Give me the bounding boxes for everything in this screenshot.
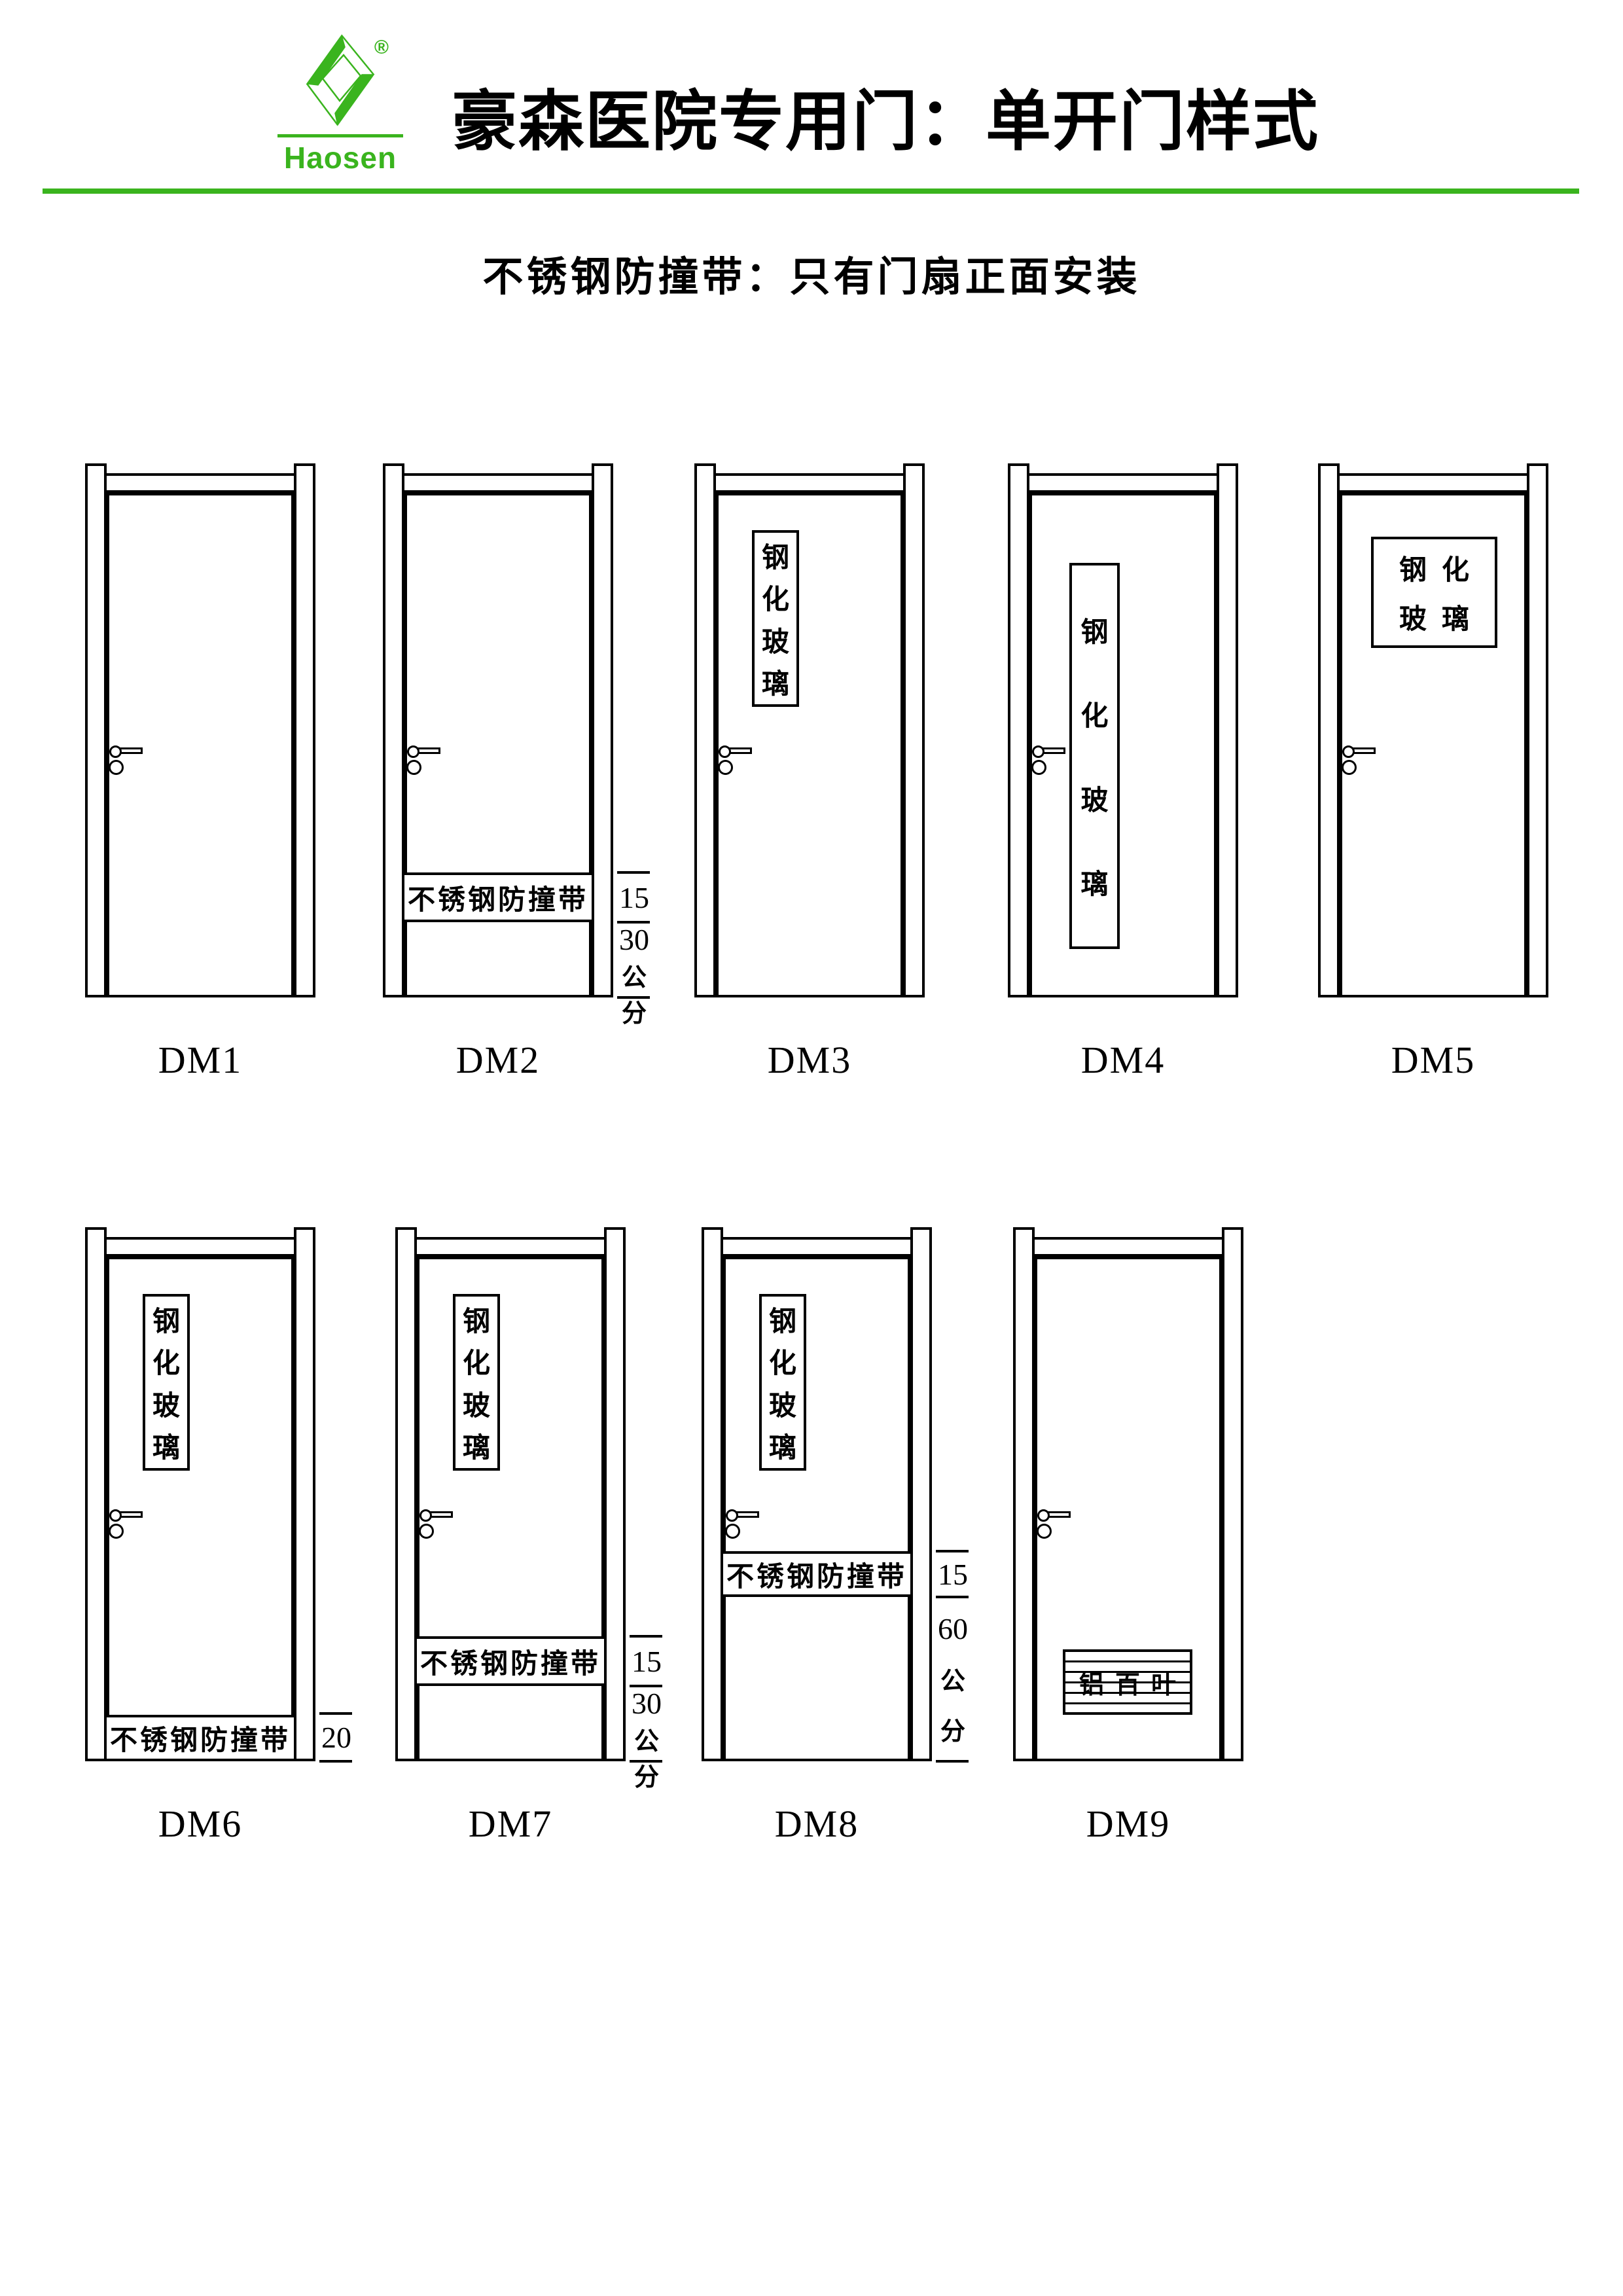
impact-strip: 不锈钢防撞带 xyxy=(417,1636,604,1686)
door-lintel xyxy=(1028,473,1218,493)
glass-label: 玻 xyxy=(769,1384,796,1424)
door-handle-rosette xyxy=(726,1509,738,1522)
catalog-page: ® Haosen 豪森医院专用门：单开门样式 不锈钢防撞带：只有门扇正面安装 D… xyxy=(0,0,1623,2296)
glass-label: 璃 xyxy=(762,662,789,702)
glass-panel: 钢化玻璃 xyxy=(143,1294,190,1471)
door-dm6: 钢化玻璃不锈钢防撞带20DM6 xyxy=(85,1227,315,1761)
dimension-value: 公 xyxy=(940,1660,965,1696)
door-label: DM9 xyxy=(1013,1802,1243,1846)
glass-label: 化 xyxy=(1080,694,1108,734)
door-left-jamb xyxy=(1318,463,1340,997)
page-title: 豪森医院专用门：单开门样式 xyxy=(452,68,1319,163)
registered-mark: ® xyxy=(374,37,389,59)
diamond-logo-icon xyxy=(304,33,376,128)
dimension-value: 60 xyxy=(938,1611,968,1646)
impact-strip-label: 不锈钢防撞带 xyxy=(420,1641,601,1681)
door-handle-keyhole-rosette xyxy=(725,1524,740,1539)
door-handle-rosette xyxy=(1037,1509,1050,1522)
door-lintel xyxy=(722,1237,912,1257)
logo-divider xyxy=(277,134,403,137)
door-right-jamb xyxy=(1222,1227,1243,1761)
door-right-jamb xyxy=(910,1227,932,1761)
glass-label: 钢 xyxy=(463,1299,490,1339)
glass-label: 钢 xyxy=(1080,610,1108,650)
glass-label: 钢化 xyxy=(1399,548,1484,588)
door-left-jamb xyxy=(383,463,404,997)
door-label: DM7 xyxy=(395,1802,626,1846)
dimension-value: 分 xyxy=(634,1757,659,1793)
glass-panel: 钢化玻璃 xyxy=(752,530,799,707)
door-dm5: 钢化玻璃DM5 xyxy=(1318,463,1548,997)
green-divider xyxy=(43,188,1579,194)
door-lintel xyxy=(403,473,593,493)
door-dm1: DM1 xyxy=(85,463,315,997)
dimension-value: 分 xyxy=(940,1711,965,1747)
door-label: DM3 xyxy=(694,1038,925,1082)
impact-strip: 不锈钢防撞带 xyxy=(404,872,592,922)
glass-label: 璃 xyxy=(1080,862,1108,902)
glass-label: 玻璃 xyxy=(1399,597,1484,637)
dimension-label: 60公分 xyxy=(933,1597,972,1761)
door-handle-keyhole-rosette xyxy=(1037,1524,1052,1539)
door-left-jamb xyxy=(694,463,716,997)
dimension-label: 15 xyxy=(615,872,654,922)
door-leaf xyxy=(107,493,294,997)
impact-strip-label: 不锈钢防撞带 xyxy=(110,1718,291,1758)
door-dm9: 铝百叶DM9 xyxy=(1013,1227,1243,1761)
door-handle-rosette xyxy=(1342,745,1355,758)
impact-strip-label: 不锈钢防撞带 xyxy=(408,878,588,918)
glass-label: 化 xyxy=(152,1341,180,1381)
door-handle-keyhole-rosette xyxy=(1031,760,1046,775)
door-right-jamb xyxy=(903,463,925,997)
door-left-jamb xyxy=(702,1227,723,1761)
door-label: DM2 xyxy=(383,1038,613,1082)
door-left-jamb xyxy=(395,1227,417,1761)
door-left-jamb xyxy=(1008,463,1029,997)
dimension-label: 15 xyxy=(933,1551,972,1597)
glass-label: 璃 xyxy=(152,1426,180,1465)
dimension-label: 30公分 xyxy=(615,922,654,997)
door-dm7: 钢化玻璃不锈钢防撞带1530公分DM7 xyxy=(395,1227,626,1761)
dimension-label: 15 xyxy=(627,1636,666,1686)
door-lintel xyxy=(1033,1237,1223,1257)
door-handle-keyhole-rosette xyxy=(1342,760,1357,775)
glass-label: 钢 xyxy=(769,1299,796,1339)
door-lintel xyxy=(105,473,295,493)
dimension-value: 15 xyxy=(632,1644,662,1679)
door-handle-keyhole-rosette xyxy=(109,760,124,775)
door-dm2: 不锈钢防撞带1530公分DM2 xyxy=(383,463,613,997)
door-label: DM5 xyxy=(1318,1038,1548,1082)
door-right-jamb xyxy=(592,463,613,997)
door-lintel xyxy=(715,473,904,493)
door-lintel xyxy=(105,1237,295,1257)
door-handle-keyhole-rosette xyxy=(406,760,421,775)
door-label: DM1 xyxy=(85,1038,315,1082)
door-handle-rosette xyxy=(419,1509,432,1522)
glass-panel: 钢化玻璃 xyxy=(1069,563,1120,949)
door-dm8: 钢化玻璃不锈钢防撞带1560公分DM8 xyxy=(702,1227,932,1761)
door-left-jamb xyxy=(1013,1227,1035,1761)
glass-label: 化 xyxy=(769,1341,796,1381)
door-handle-keyhole-rosette xyxy=(419,1524,434,1539)
door-lintel xyxy=(416,1237,605,1257)
glass-label: 玻 xyxy=(463,1384,490,1424)
glass-label: 化 xyxy=(463,1341,490,1381)
door-handle-keyhole-rosette xyxy=(109,1524,124,1539)
door-right-jamb xyxy=(1217,463,1238,997)
door-dm4: 钢化玻璃DM4 xyxy=(1008,463,1238,997)
impact-strip-label: 不锈钢防撞带 xyxy=(726,1554,907,1594)
glass-label: 璃 xyxy=(463,1426,490,1465)
brand-name: Haosen xyxy=(275,140,406,175)
door-handle-rosette xyxy=(719,745,731,758)
dimension-value: 分 xyxy=(622,993,647,1029)
glass-label: 玻 xyxy=(762,620,789,660)
door-right-jamb xyxy=(1527,463,1548,997)
glass-label: 玻 xyxy=(152,1384,180,1424)
glass-label: 化 xyxy=(762,577,789,617)
dimension-value: 公 xyxy=(622,957,647,993)
door-dm3: 钢化玻璃DM3 xyxy=(694,463,925,997)
door-leaf xyxy=(723,1257,910,1761)
glass-label: 玻 xyxy=(1080,778,1108,818)
dimension-value: 30 xyxy=(632,1686,662,1721)
dimension-value: 20 xyxy=(321,1720,351,1755)
page-subtitle: 不锈钢防撞带：只有门扇正面安装 xyxy=(0,243,1623,302)
dimension-value: 30 xyxy=(619,922,649,957)
glass-label: 璃 xyxy=(769,1426,796,1465)
door-handle-keyhole-rosette xyxy=(718,760,733,775)
glass-label: 钢 xyxy=(762,535,789,575)
door-left-jamb xyxy=(85,463,107,997)
dimension-label: 20 xyxy=(317,1713,356,1761)
door-handle-rosette xyxy=(1032,745,1044,758)
door-leaf xyxy=(1029,493,1217,997)
door-right-jamb xyxy=(604,1227,626,1761)
door-label: DM6 xyxy=(85,1802,315,1846)
door-right-jamb xyxy=(294,1227,315,1761)
glass-panel: 钢化玻璃 xyxy=(1371,537,1497,648)
door-left-jamb xyxy=(85,1227,107,1761)
door-leaf xyxy=(107,1257,294,1761)
glass-label: 钢 xyxy=(152,1299,180,1339)
glass-panel: 钢化玻璃 xyxy=(759,1294,806,1471)
door-right-jamb xyxy=(294,463,315,997)
dimension-label: 30公分 xyxy=(627,1686,666,1761)
door-handle-rosette xyxy=(109,745,122,758)
door-label: DM4 xyxy=(1008,1038,1238,1082)
dimension-value: 15 xyxy=(938,1557,968,1592)
door-handle-rosette xyxy=(407,745,419,758)
impact-strip: 不锈钢防撞带 xyxy=(107,1715,294,1761)
haosen-logo: ® Haosen xyxy=(275,33,406,175)
dimension-value: 公 xyxy=(634,1721,659,1757)
door-leaf xyxy=(716,493,903,997)
louver-label: 铝百叶 xyxy=(1079,1664,1187,1700)
impact-strip: 不锈钢防撞带 xyxy=(723,1551,910,1597)
glass-panel: 钢化玻璃 xyxy=(453,1294,500,1471)
dimension-value: 15 xyxy=(619,880,649,915)
door-handle-rosette xyxy=(109,1509,122,1522)
door-lintel xyxy=(1338,473,1528,493)
louver-panel: 铝百叶 xyxy=(1063,1649,1192,1715)
door-label: DM8 xyxy=(702,1802,932,1846)
